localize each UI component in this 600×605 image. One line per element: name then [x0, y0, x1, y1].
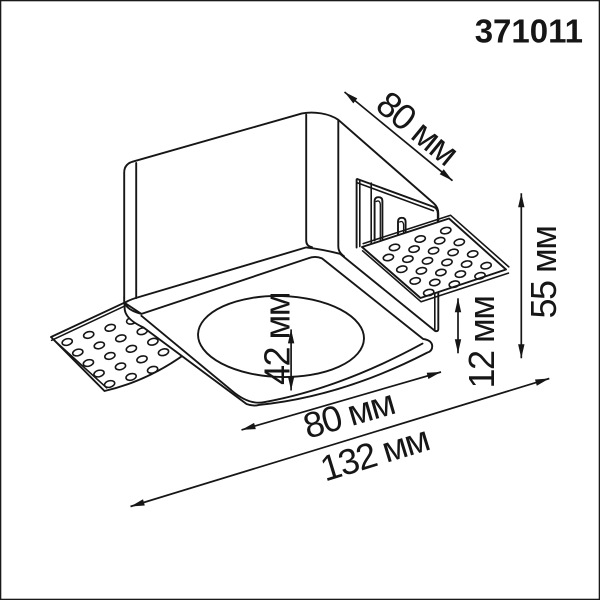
svg-text:42 мм: 42 мм	[257, 293, 298, 385]
svg-text:12 мм: 12 мм	[461, 296, 502, 388]
svg-text:55 мм: 55 мм	[523, 226, 564, 318]
svg-text:371011: 371011	[475, 13, 583, 50]
